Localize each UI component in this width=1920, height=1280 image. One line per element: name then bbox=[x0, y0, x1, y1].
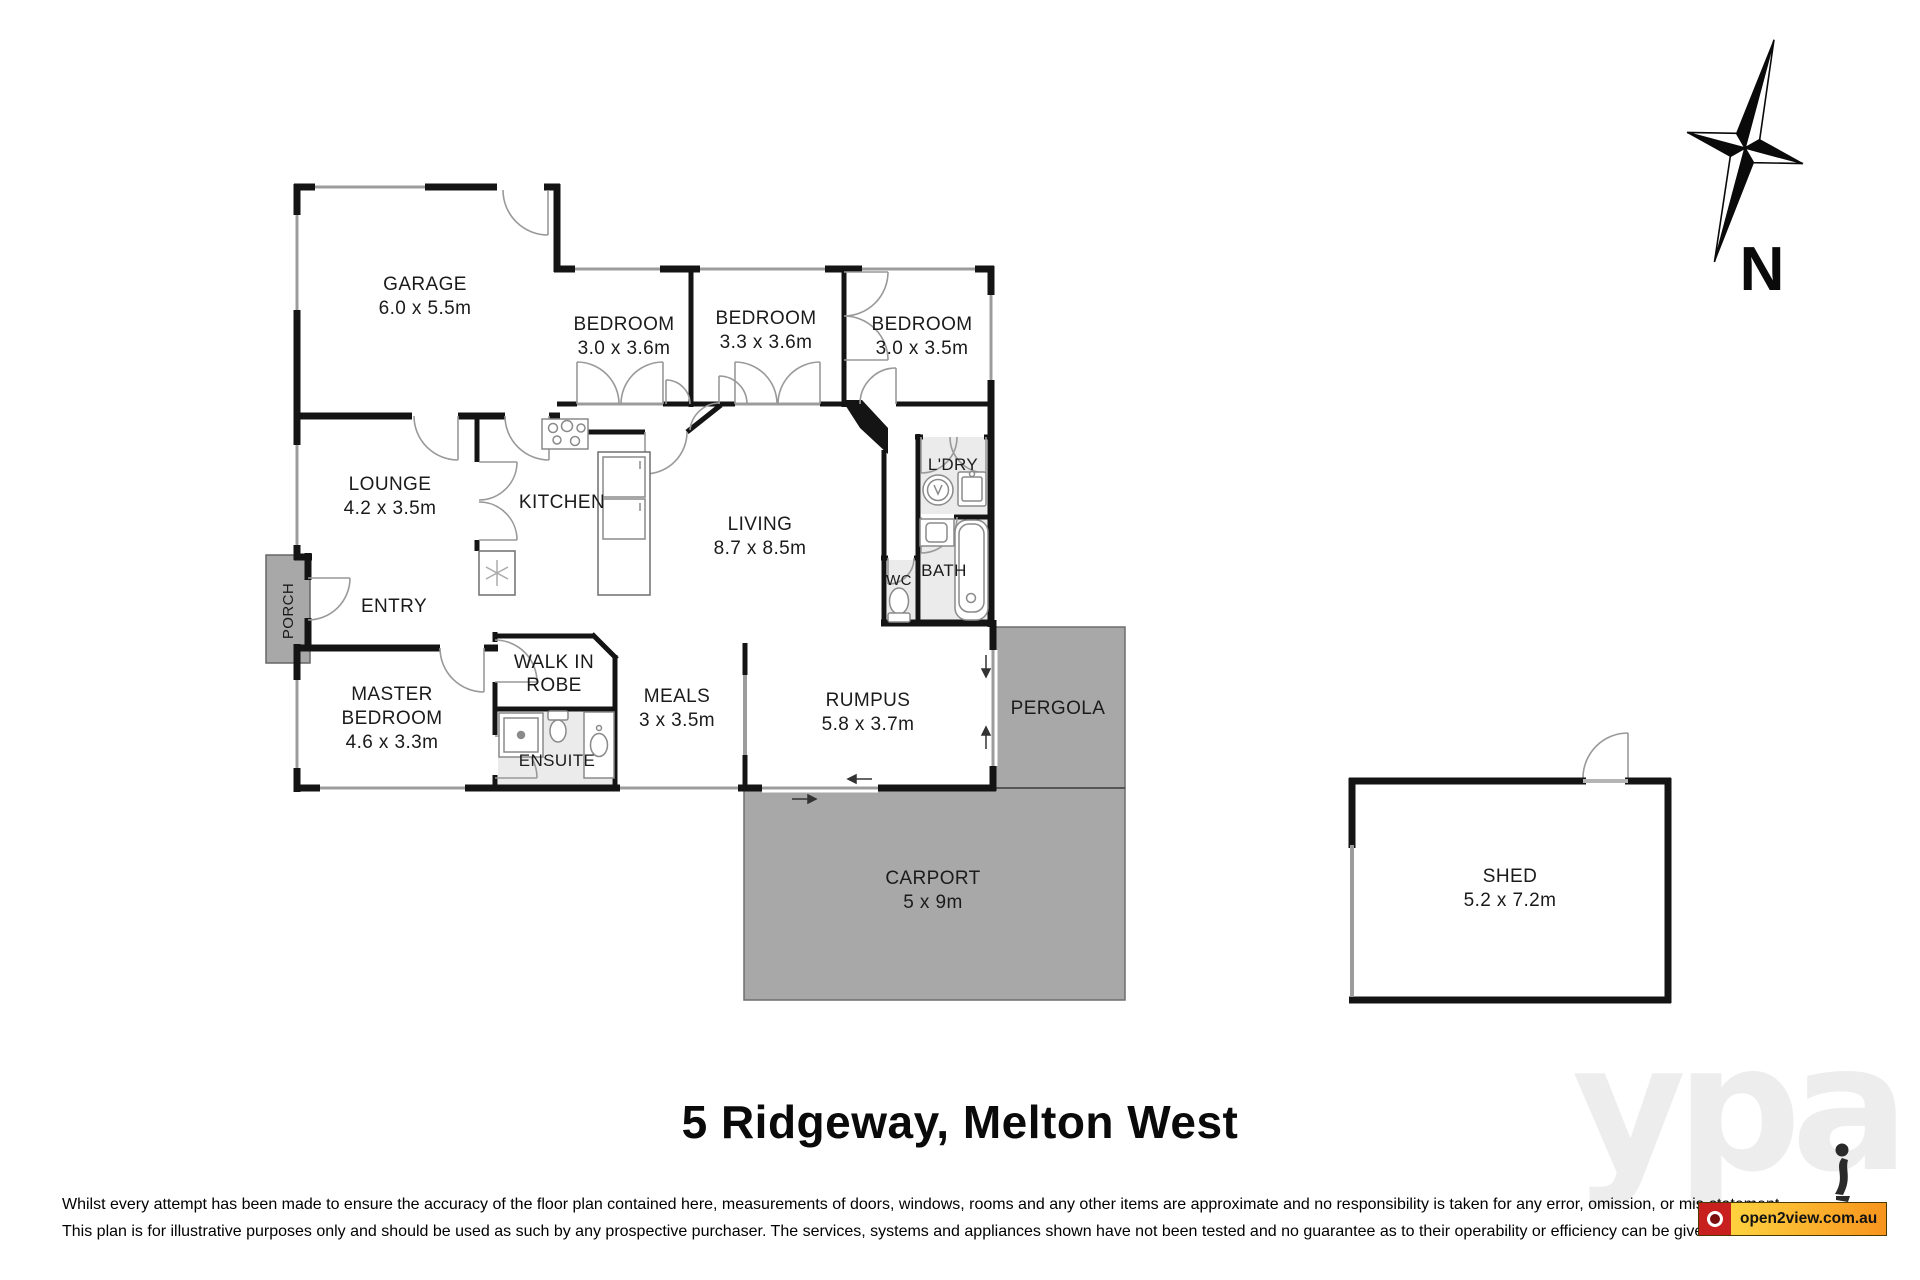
stove-icon bbox=[542, 419, 588, 449]
open2view-logo: open2view.com.au bbox=[1698, 1202, 1887, 1236]
room-label-master-1: MASTER bbox=[351, 684, 433, 705]
bedroom2-door-swing bbox=[719, 376, 747, 404]
room-dims-meals: 3 x 3.5m bbox=[639, 710, 715, 731]
camera-icon bbox=[1699, 1203, 1731, 1235]
floor-plan-svg: GARAGE 6.0 x 5.5m BEDROOM 3.0 x 3.6m BED… bbox=[0, 0, 1920, 1280]
room-dims-rumpus: 5.8 x 3.7m bbox=[822, 714, 915, 735]
room-dims-bedroom1: 3.0 x 3.6m bbox=[578, 338, 671, 359]
room-dims-carport: 5 x 9m bbox=[903, 892, 962, 913]
hall-corner-wall bbox=[842, 400, 888, 454]
lounge-door-swing bbox=[414, 416, 458, 460]
disclaimer-line-2: This plan is for illustrative purposes o… bbox=[62, 1223, 1717, 1241]
bedroom2-robe-swing bbox=[735, 362, 820, 404]
shed-outline: SHED 5.2 x 7.2m bbox=[1349, 778, 1671, 1003]
room-label-wc: WC bbox=[886, 572, 912, 589]
room-dims-garage: 6.0 x 5.5m bbox=[379, 298, 472, 319]
room-label-living: LIVING bbox=[728, 514, 793, 535]
room-dims-bedroom2: 3.3 x 3.6m bbox=[720, 332, 813, 353]
master-door-swing bbox=[440, 648, 484, 692]
mascot-icon bbox=[1824, 1142, 1858, 1204]
room-dims-shed: 5.2 x 7.2m bbox=[1464, 890, 1557, 911]
room-label-rumpus: RUMPUS bbox=[826, 690, 911, 711]
disclaimer-line-1: Whilst every attempt has been made to en… bbox=[62, 1196, 1784, 1214]
room-label-pergola: PERGOLA bbox=[1011, 698, 1106, 719]
room-dims-bedroom3: 3.0 x 3.5m bbox=[876, 338, 969, 359]
room-label-wir-1: WALK IN bbox=[514, 652, 594, 673]
ensuite-toilet-icon bbox=[548, 711, 568, 742]
hall-living-door-swing bbox=[645, 432, 687, 474]
room-label-wir-2: ROBE bbox=[526, 675, 581, 696]
room-dims-living: 8.7 x 8.5m bbox=[714, 538, 807, 559]
room-label-bath: BATH bbox=[921, 561, 967, 580]
front-door-swing bbox=[308, 578, 350, 620]
room-label-meals: MEALS bbox=[644, 686, 710, 707]
shed-door-swing bbox=[1583, 733, 1628, 778]
room-label-shed: SHED bbox=[1483, 866, 1537, 887]
room-label-garage: GARAGE bbox=[383, 274, 467, 295]
room-label-entry: ENTRY bbox=[361, 596, 427, 617]
open2view-logo-text: open2view.com.au bbox=[1731, 1203, 1886, 1235]
wc-toilet-icon bbox=[888, 588, 910, 622]
room-label-bedroom2: BEDROOM bbox=[716, 308, 817, 329]
room-label-ensuite: ENSUITE bbox=[519, 751, 595, 770]
room-label-laundry: L'DRY bbox=[928, 455, 978, 474]
room-label-master-2: BEDROOM bbox=[342, 708, 443, 729]
room-label-bedroom1: BEDROOM bbox=[574, 314, 675, 335]
bedroom1-door-swing bbox=[666, 380, 690, 404]
compass-icon: N bbox=[1657, 24, 1832, 304]
bedroom3-door-swing bbox=[860, 368, 896, 404]
room-label-kitchen: KITCHEN bbox=[519, 492, 605, 513]
north-label: N bbox=[1740, 235, 1785, 304]
kitchen-door-swings bbox=[479, 462, 517, 540]
page-title: 5 Ridgeway, Melton West bbox=[0, 1095, 1920, 1149]
laundry-sink-icon bbox=[958, 472, 986, 507]
room-label-bedroom3: BEDROOM bbox=[872, 314, 973, 335]
room-dims-lounge: 4.2 x 3.5m bbox=[344, 498, 437, 519]
bath-vanity-icon bbox=[920, 519, 954, 546]
room-dims-master: 4.6 x 3.3m bbox=[346, 732, 439, 753]
floor-plan-page: ypa bbox=[0, 0, 1920, 1280]
room-label-lounge: LOUNGE bbox=[349, 474, 432, 495]
pantry-icon bbox=[479, 551, 515, 595]
room-label-porch: PORCH bbox=[280, 583, 297, 639]
bedroom1-robe-swing bbox=[577, 362, 663, 404]
garage-door-swing bbox=[503, 190, 548, 235]
washing-machine-icon bbox=[923, 475, 953, 505]
room-label-carport: CARPORT bbox=[885, 868, 980, 889]
